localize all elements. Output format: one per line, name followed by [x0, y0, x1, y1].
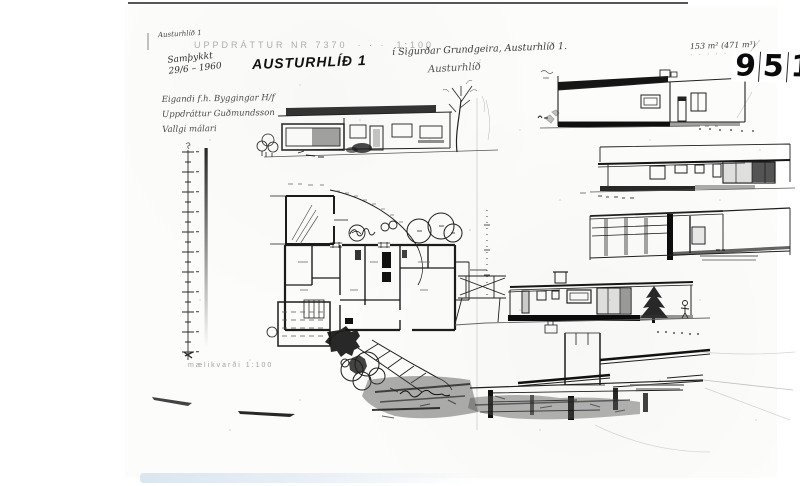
owner-notes: Eigandi f.h. Byggingar H/f Uppdráttur Gu… — [162, 91, 276, 138]
plate-digit: 1 — [786, 52, 800, 82]
scanner-edge-band — [140, 473, 475, 483]
plate-digit: 9 — [731, 51, 760, 81]
plate-digit: 5 — [758, 52, 788, 82]
stamp-text: UPPDRÁTTUR NR 7370 — [194, 40, 348, 50]
paper-sheet — [125, 5, 777, 478]
scanned-architectural-sheet: Austurhlíð 1 UPPDRÁTTUR NR 7370· · ·1:10… — [0, 0, 800, 486]
stamp-dots: · · · — [358, 40, 387, 50]
owner-note-line: Vallgi málari — [162, 121, 275, 138]
owner-note-line: Uppdráttur Guðmundsson — [162, 106, 275, 123]
house-number-plate: 9 5 1 — [731, 51, 800, 82]
scale-note: mælikvarði 1:100 — [188, 362, 273, 369]
